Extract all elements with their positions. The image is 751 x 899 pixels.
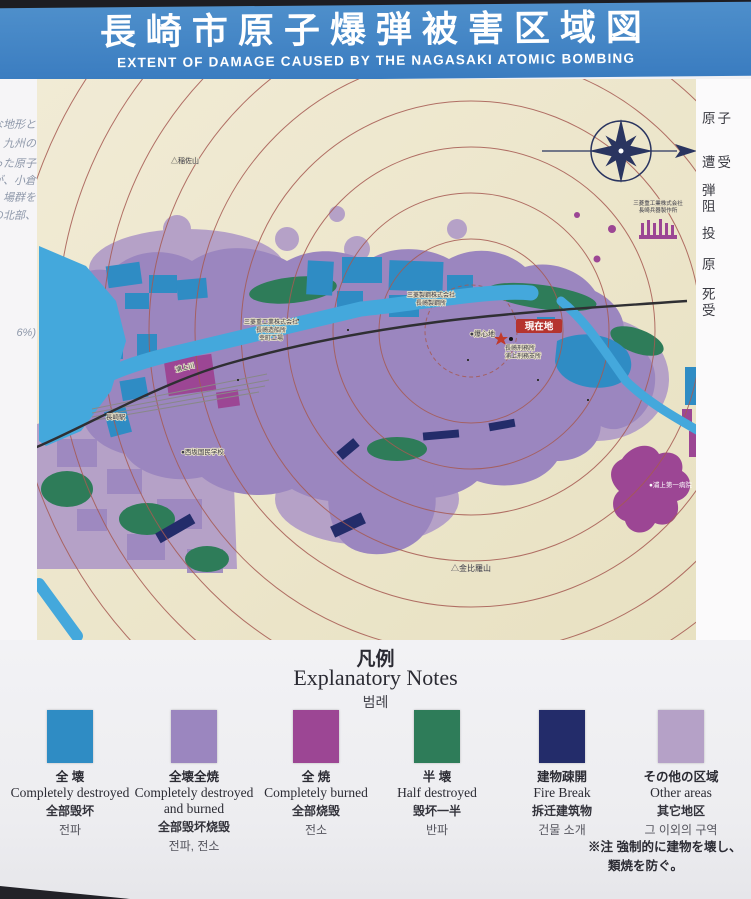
legend-note: ※注 強制的に建物を壊し、 類焼を防ぐ。 xyxy=(588,838,748,876)
legend-label-kr: 전파, 전소 xyxy=(130,838,258,854)
mt-inasa-label: △稲佐山 xyxy=(171,156,199,165)
page-title: 長崎市原子爆弾被害区域図 xyxy=(0,6,751,55)
right-fragment: 原 xyxy=(702,253,718,273)
left-fragment: 場群を xyxy=(3,189,36,205)
legend-swatch xyxy=(414,710,460,763)
nagasaki-damage-map-sign: 長崎市原子爆弾被害区域図 EXTENT OF DAMAGE CAUSED BY … xyxy=(0,0,751,899)
right-fragment: 遭受 xyxy=(702,151,733,171)
legend-swatch xyxy=(539,710,585,763)
legend-label-en: Completely destroyed xyxy=(8,785,132,801)
legend-label-kr: 전파 xyxy=(8,822,132,838)
nishizaka-school-label: ●西坂国民学校 xyxy=(181,447,224,456)
mitsubishi-arms-label-1: 三菱重工業株式会社 xyxy=(633,199,683,207)
mitsubishi-shipyard-label-3: 幸町工場 xyxy=(259,334,283,342)
right-fragment: 受 xyxy=(702,299,718,319)
legend-label-kr: 그 이외의 구역 xyxy=(616,822,746,838)
mitsubishi-steel-label-1: 三菱製鋼株式会社 xyxy=(407,291,455,299)
right-fragment: 原子 xyxy=(702,107,733,127)
left-fragment: 6%) xyxy=(16,327,36,339)
legend-label-jp: 全 焼 xyxy=(254,770,378,785)
legend-item-other-areas: その他の区域 Other areas 其它地区 그 이외의 구역 xyxy=(616,710,746,838)
title-bar: 長崎市原子爆弾被害区域図 EXTENT OF DAMAGE CAUSED BY … xyxy=(0,2,751,83)
prison-label-1: 長崎刑務所 xyxy=(505,344,535,352)
legend-item-fire-break: 建物疎開 Fire Break 拆迁建筑物 건물 소개 xyxy=(500,710,624,838)
current-location-label: 現在地 xyxy=(525,321,554,333)
mitsubishi-steel-label-2: 長崎製鋼所 xyxy=(416,299,446,307)
right-fragment: 阻 xyxy=(702,195,718,215)
legend-label-jp: 全 壊 xyxy=(8,770,132,785)
mitsubishi-shipyard-label-1: 三菱重工業株式会社 xyxy=(244,318,298,326)
mt-konpira-label: △金比羅山 xyxy=(451,563,491,573)
map-area: な地形と 、九州の った原子 が、小倉 場群を の北部、 6%) xyxy=(0,79,751,640)
legend-label-en: Fire Break xyxy=(500,785,624,801)
legend-note-line1: ※注 強制的に建物を壊し、 xyxy=(588,838,748,857)
mitsubishi-arms-label-2: 長崎兵器製作所 xyxy=(639,206,678,214)
legend-label-en: Completely burned xyxy=(254,785,378,801)
legend-section: 凡例 Explanatory Notes 범례 全 壊 Completely d… xyxy=(0,640,751,899)
legend-label-kr: 전소 xyxy=(254,822,378,838)
legend-swatch xyxy=(658,710,704,763)
legend-item-completely-destroyed: 全 壊 Completely destroyed 全部毁坏 전파 xyxy=(8,710,132,838)
mitsubishi-shipyard-label-2: 長崎造船所 xyxy=(256,326,286,334)
legend-label-jp: 半 壊 xyxy=(375,770,499,785)
hypocenter-label: ●爆心地 xyxy=(470,329,495,338)
legend-label-kr: 건물 소개 xyxy=(500,822,624,838)
left-fragment: が、小倉 xyxy=(0,172,36,188)
legend-item-completely-burned: 全 焼 Completely burned 全部烧毁 전소 xyxy=(254,710,378,838)
legend-title-en: Explanatory Notes xyxy=(0,665,751,691)
legend-item-destroyed-and-burned: 全壊全焼 Completely destroyed and burned 全部毁… xyxy=(130,710,258,854)
legend-label-kr: 반파 xyxy=(375,822,499,838)
legend-label-jp: 建物疎開 xyxy=(500,770,624,785)
left-fragment: の北部、 xyxy=(0,207,36,223)
urakami-hospital-label: ●浦上第一病院 xyxy=(649,480,692,489)
left-fragment: った原子 xyxy=(0,155,36,171)
legend-note-line2: 類焼を防ぐ。 xyxy=(608,857,748,876)
legend-label-zh: 全部烧毁 xyxy=(254,803,378,820)
current-location-marker: 現在地 xyxy=(516,319,562,333)
right-fragment: 投 xyxy=(702,222,718,242)
prison-label-2: 浦上刑務支所 xyxy=(505,352,541,360)
legend-label-jp: 全壊全焼 xyxy=(130,770,258,785)
legend-label-zh: 全部毁坏 xyxy=(8,803,132,820)
legend-swatch xyxy=(171,710,217,763)
legend-label-en: Half destroyed xyxy=(375,785,499,801)
nagasaki-station-label: 長崎駅 xyxy=(106,412,126,421)
legend-item-half-destroyed: 半 壊 Half destroyed 毁坏一半 반파 xyxy=(375,710,499,838)
legend-swatch xyxy=(293,710,339,763)
legend-label-jp: その他の区域 xyxy=(616,770,746,785)
legend-label-en: Completely destroyed and burned xyxy=(130,785,258,817)
legend-label-zh: 毁坏一半 xyxy=(375,803,499,820)
right-text-panel: 原子 遭受 弾 阻 投 原 死 受 xyxy=(696,79,751,640)
damage-extent-map: 現在地 ●爆心地 長崎刑務所 浦上刑務支所 △稲佐山 △金比羅山 浦上川 長崎駅… xyxy=(37,79,697,641)
legend-swatch xyxy=(47,710,93,763)
legend-label-zh: 全部毁坏烧毁 xyxy=(130,819,258,836)
legend-label-zh: 拆迁建筑物 xyxy=(500,803,624,820)
left-text-panel: な地形と 、九州の った原子 が、小倉 場群を の北部、 6%) xyxy=(0,79,37,640)
left-fragment: な地形と xyxy=(0,116,36,132)
legend-label-en: Other areas xyxy=(616,785,746,801)
legend-title-kr: 범례 xyxy=(0,692,751,712)
left-fragment: 、九州の xyxy=(0,135,36,151)
legend-label-zh: 其它地区 xyxy=(616,803,746,820)
